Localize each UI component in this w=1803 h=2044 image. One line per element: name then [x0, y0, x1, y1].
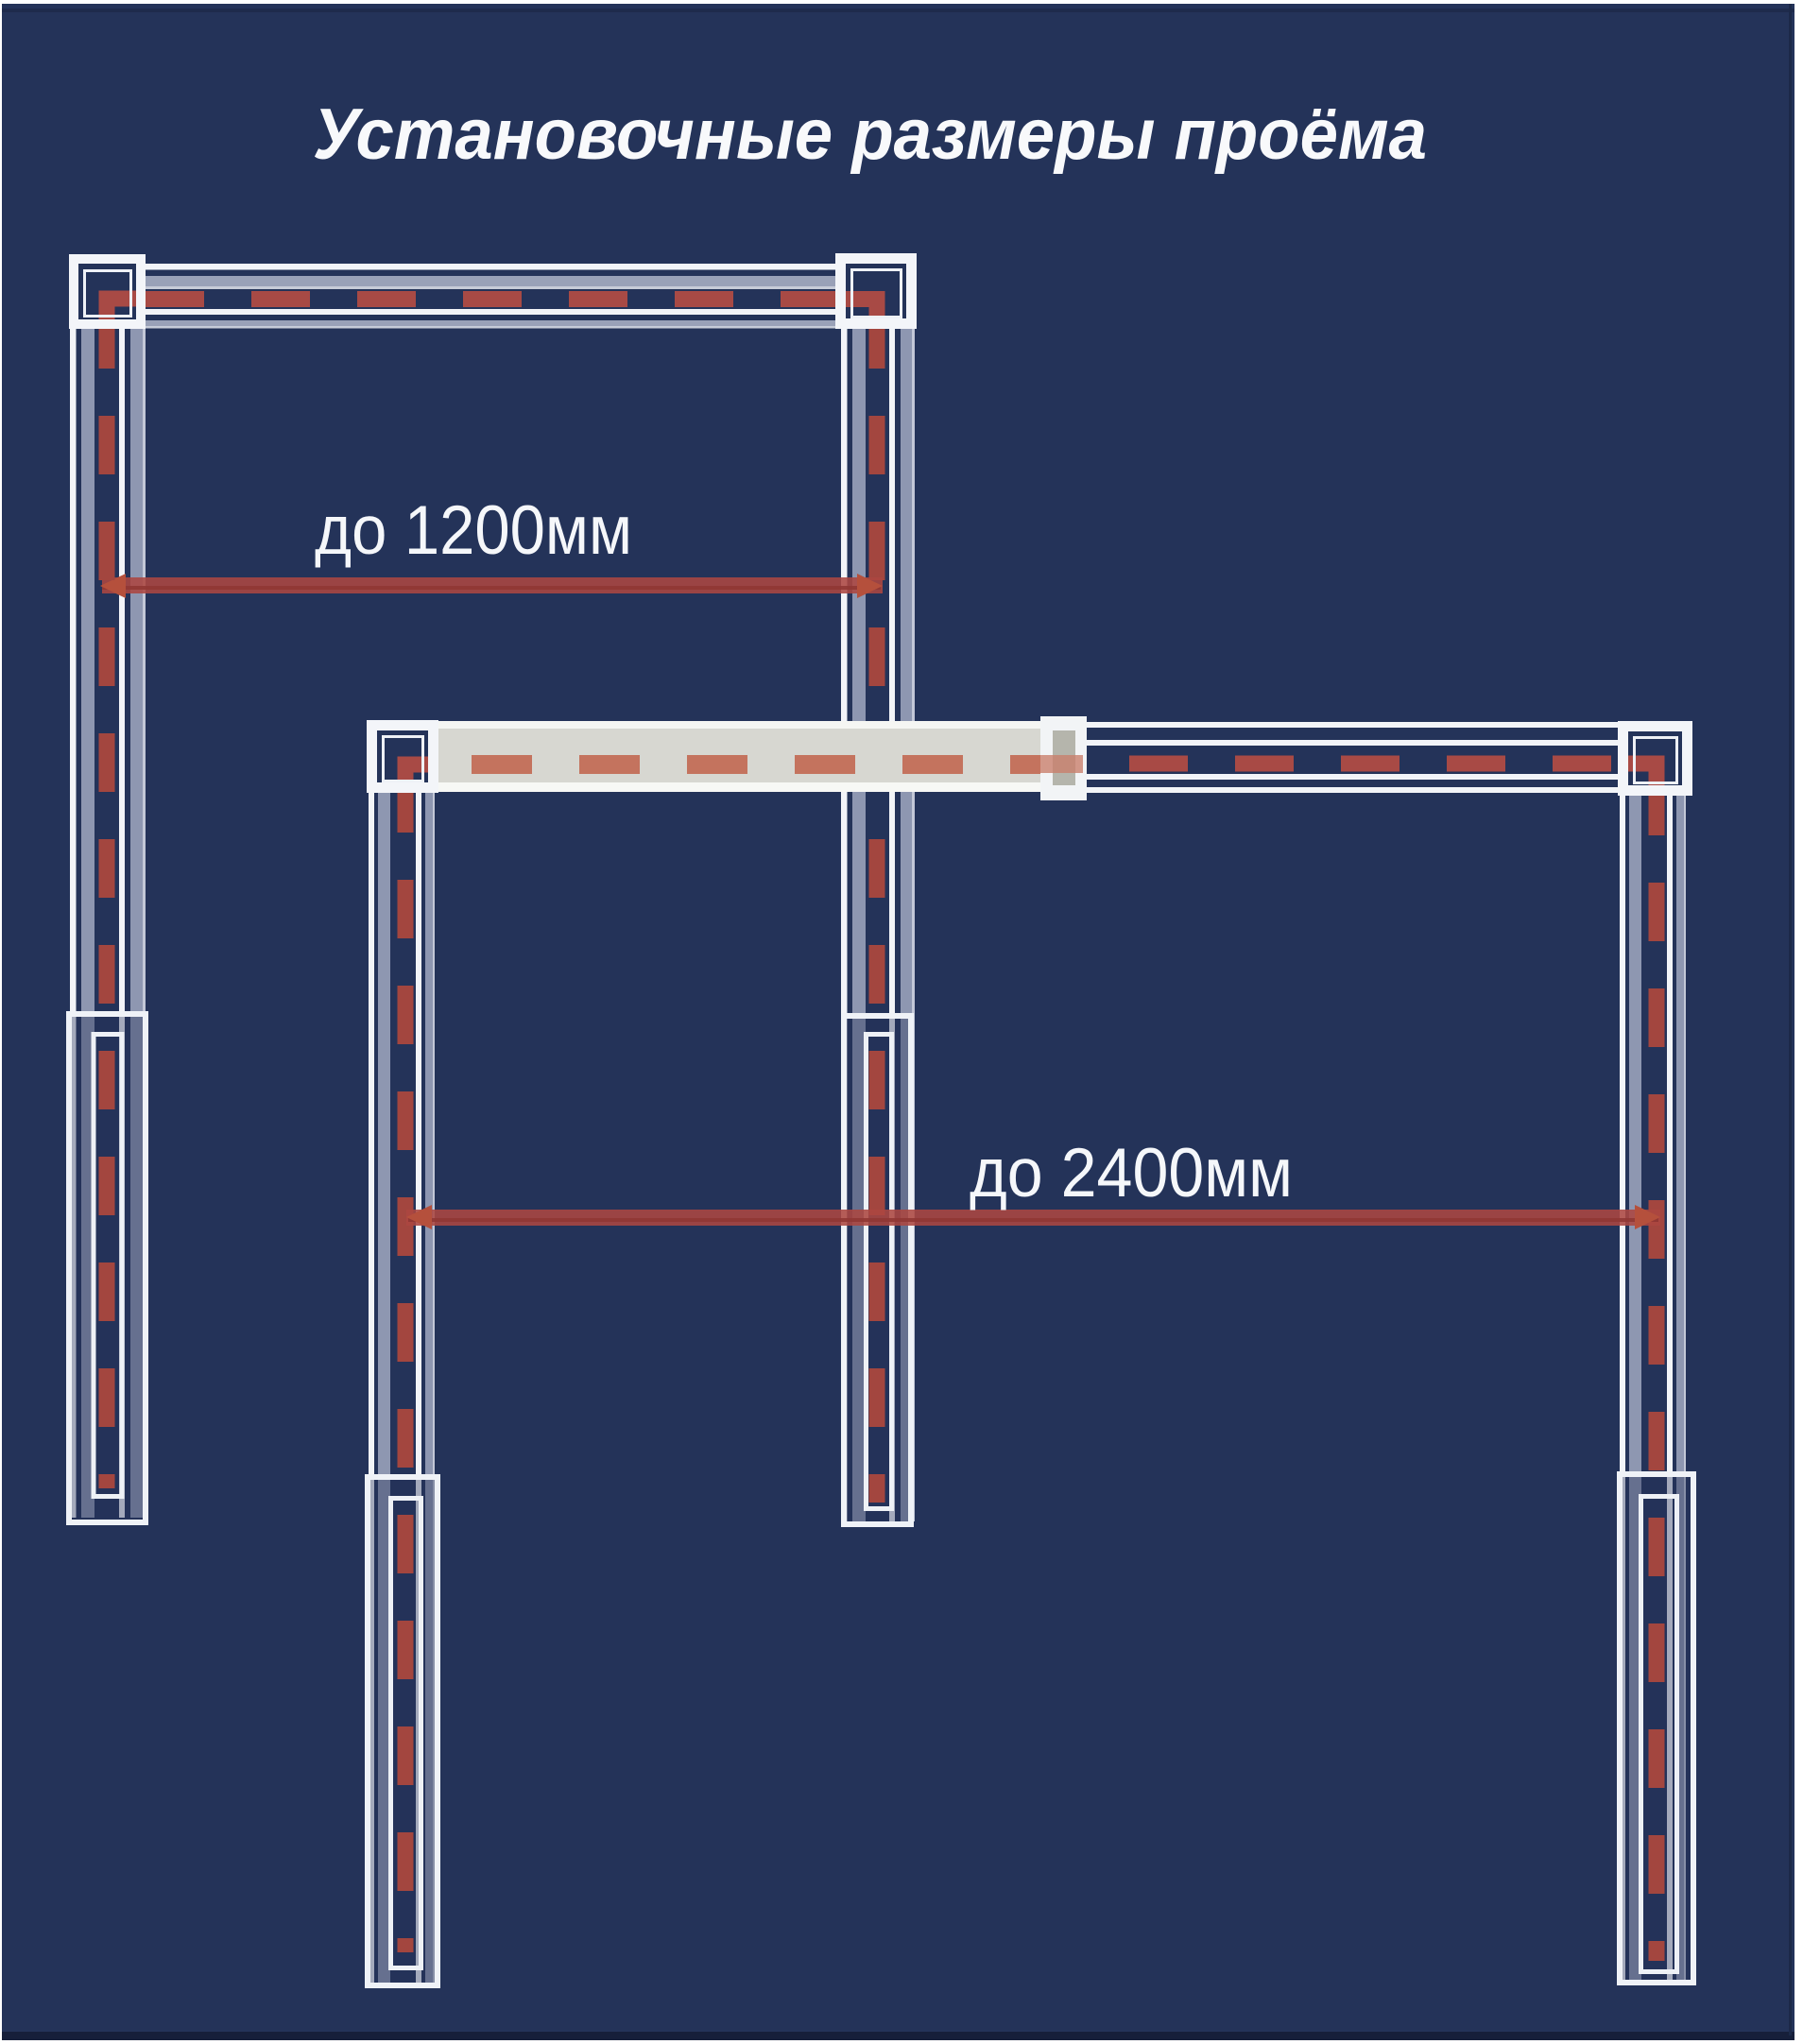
- svg-text:до 2400мм: до 2400мм: [970, 1135, 1293, 1211]
- svg-text:до 1200мм: до 1200мм: [315, 492, 632, 569]
- svg-text:Установочные размеры проёма: Установочные размеры проёма: [313, 94, 1427, 175]
